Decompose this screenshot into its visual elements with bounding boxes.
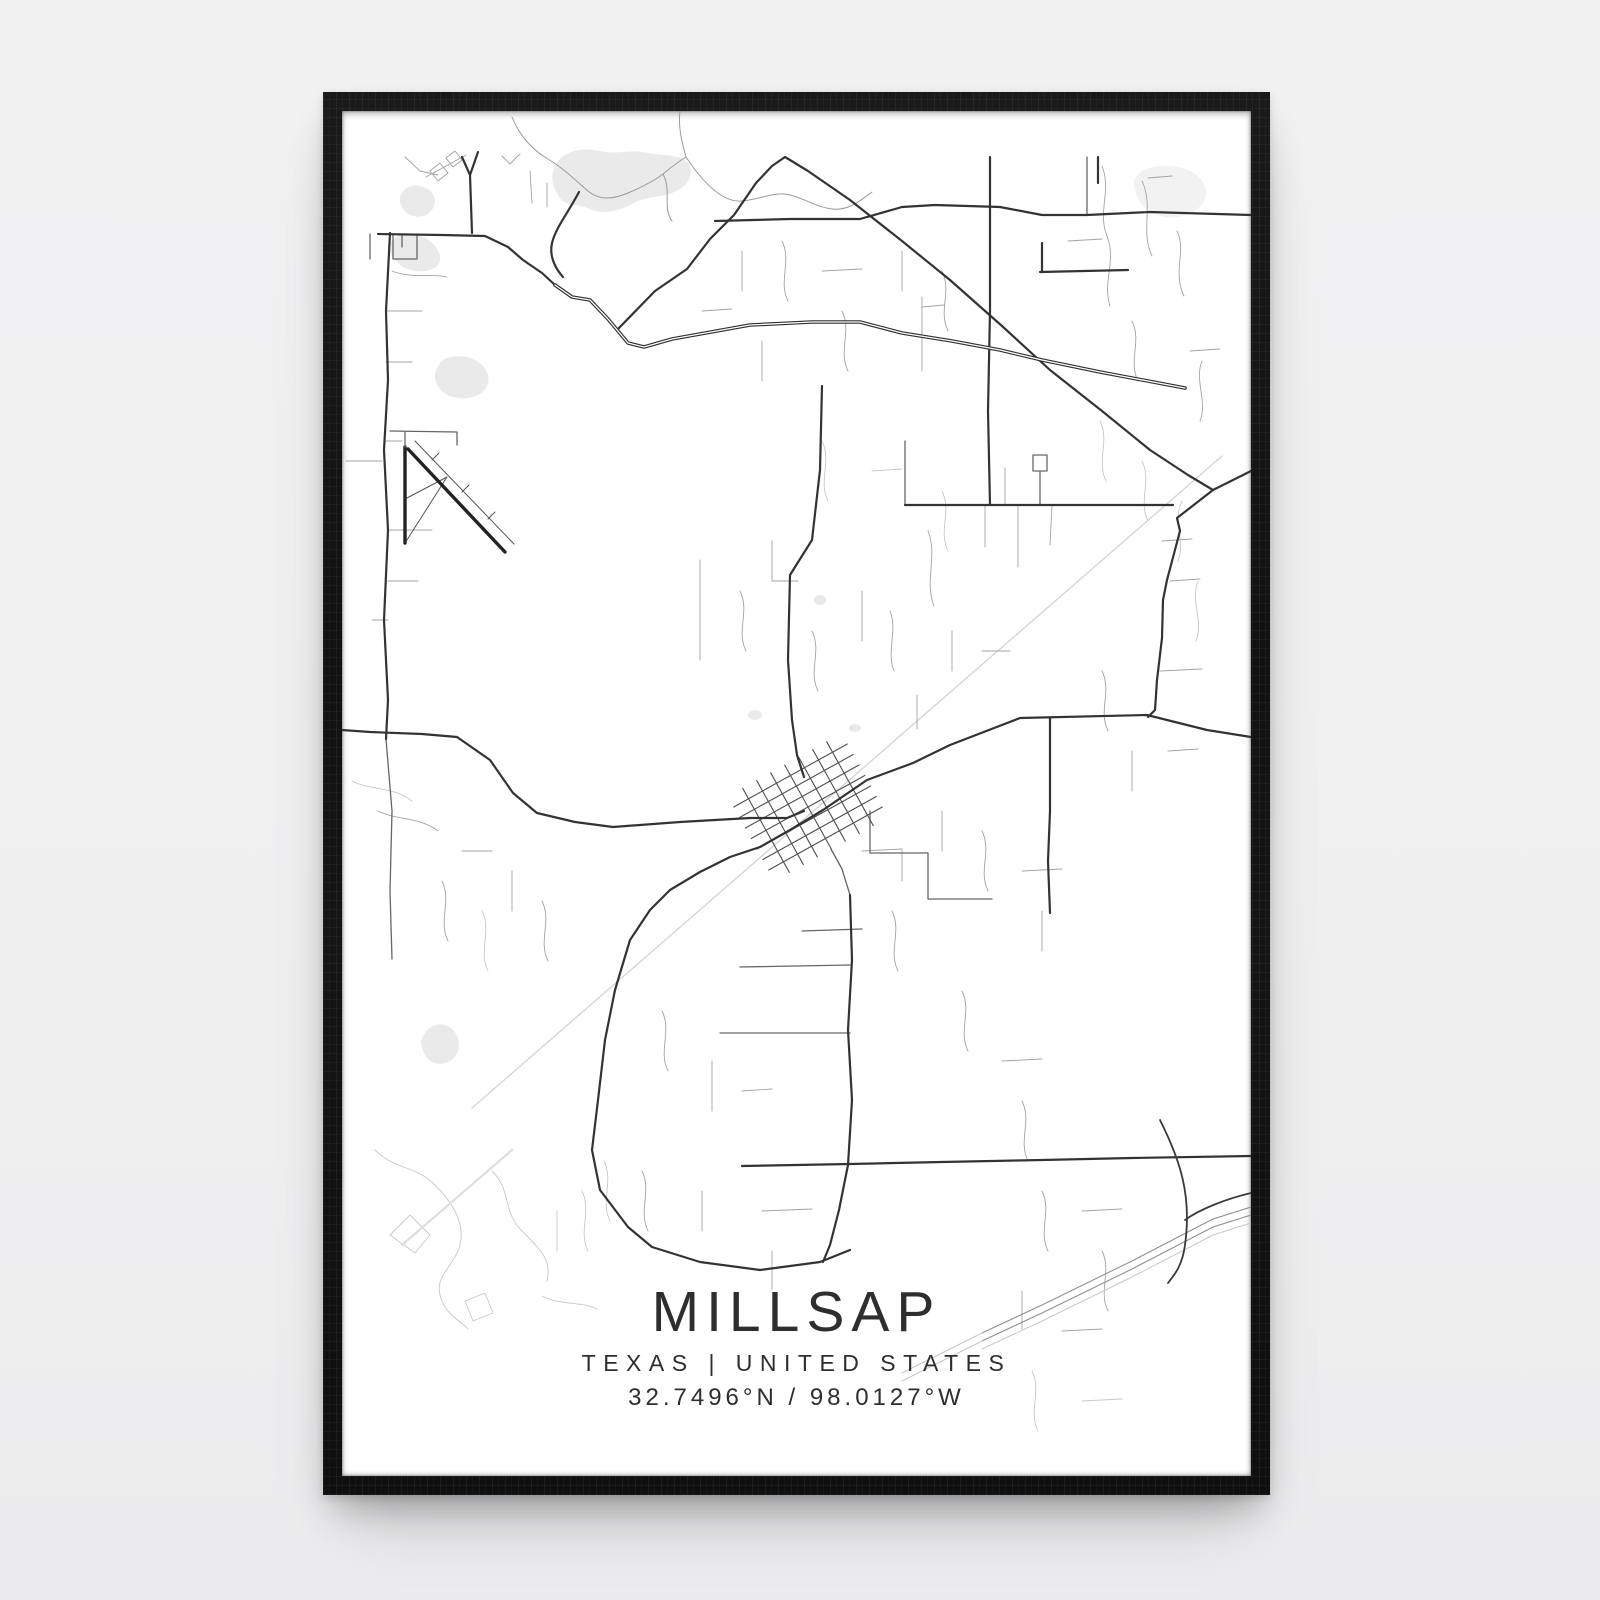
lanes-bottom-right — [1022, 1191, 1122, 1331]
road-top-fork — [462, 152, 478, 233]
product-photo: MILLSAP TEXAS | UNITED STATES 32.7496°N … — [0, 0, 1600, 1600]
lanes-left-bottom — [378, 811, 548, 961]
south-vertical-road — [823, 895, 852, 1262]
highway-casing — [555, 285, 1185, 388]
stubs-right-column — [1102, 539, 1202, 791]
northeast-arc-road — [618, 157, 1213, 717]
lanes-middle — [700, 531, 1010, 729]
pond-shape — [849, 724, 861, 732]
county-road-west — [342, 730, 804, 827]
patch-top-right — [1134, 166, 1206, 218]
vertical-east-of-town — [1048, 718, 1050, 913]
map-print: MILLSAP TEXAS | UNITED STATES 32.7496°N … — [342, 111, 1251, 1476]
town-north-road — [788, 386, 822, 777]
left-vertical-road — [384, 233, 390, 739]
pond-left — [389, 234, 440, 271]
airport-access-road — [390, 431, 457, 447]
grid-exit-southeast — [831, 849, 850, 895]
lanes-top-center — [702, 241, 948, 381]
pond-bottom-left — [421, 1024, 459, 1063]
lanes-town-east — [862, 811, 1062, 1161]
tracks-middle — [352, 441, 1122, 1431]
lanes-left-mid — [346, 271, 447, 620]
airport-taxiway-outline — [405, 441, 514, 544]
poster-frame: MILLSAP TEXAS | UNITED STATES 32.7496°N … — [323, 92, 1270, 1495]
stubs-near-south-road — [720, 929, 862, 1033]
airport-runway-diagonal — [408, 449, 505, 552]
pond-shape — [748, 710, 762, 720]
pond-shape — [814, 595, 826, 605]
pond-left-upper — [400, 186, 435, 217]
loop-square-right — [1033, 455, 1047, 505]
tracks-bottom-left — [375, 1150, 610, 1329]
millsap-street-map — [342, 111, 1251, 1476]
tracks-top-right — [1100, 421, 1199, 641]
left-vertical-lower — [386, 739, 392, 959]
interstate-line-2 — [982, 1215, 1251, 1341]
lanes-bottom-center — [642, 1011, 812, 1289]
interstate-line-1 — [982, 1207, 1251, 1333]
block-roads-southeast — [870, 811, 992, 899]
pond-left-mid — [435, 356, 488, 398]
rail-spur-fading — [402, 1150, 512, 1245]
curve-road-bottom-right — [1160, 1120, 1251, 1283]
bottom-east-west-road — [742, 1156, 1251, 1166]
highway-centerline — [555, 285, 1185, 388]
us180-through-town — [592, 715, 1251, 1270]
north-vertical-road — [988, 157, 990, 505]
interstate-line-3 — [902, 1223, 1251, 1381]
railroad-diagonal — [472, 456, 1222, 1108]
town-street-grid — [734, 742, 883, 873]
